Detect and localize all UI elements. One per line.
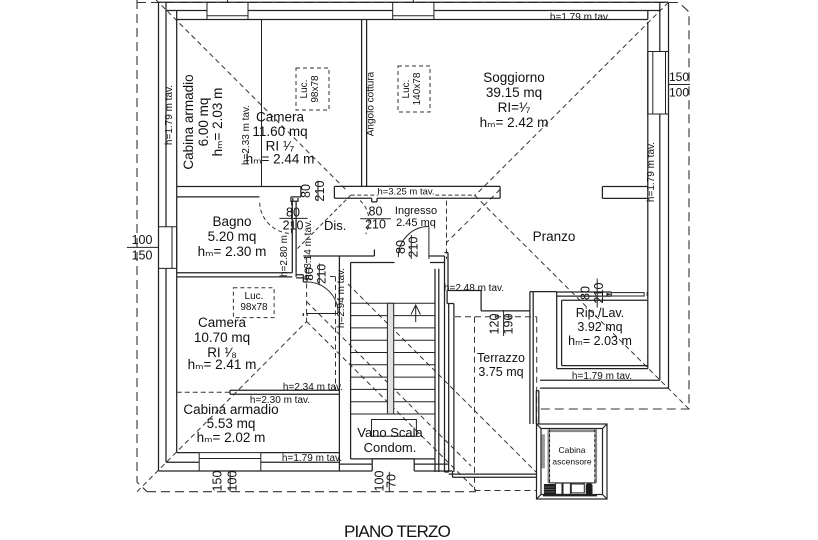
svg-text:Camera: Camera [256,110,305,125]
svg-text:h=1.79 m tav.: h=1.79 m tav. [572,371,632,382]
svg-text:150: 150 [669,70,689,84]
svg-text:100: 100 [669,86,689,100]
svg-text:Pranzo: Pranzo [533,229,576,244]
svg-text:Bagno: Bagno [212,214,251,229]
svg-text:150: 150 [132,249,153,263]
svg-text:Soggiorno: Soggiorno [483,70,545,85]
svg-text:h=1.79 m tav.: h=1.79 m tav. [282,453,342,464]
svg-text:3.92 mq: 3.92 mq [577,320,622,334]
svg-text:h=1.79 m tav.: h=1.79 m tav. [646,142,657,202]
svg-text:PIANO TERZO: PIANO TERZO [344,522,451,540]
svg-text:140x78: 140x78 [412,72,423,105]
svg-text:6.00 mq: 6.00 mq [196,98,211,147]
svg-text:80: 80 [286,205,300,219]
svg-text:h=2.34 m tav.: h=2.34 m tav. [283,382,343,393]
svg-text:210: 210 [313,181,327,202]
svg-text:Cabina armadio: Cabina armadio [181,74,196,169]
svg-text:Cabina armadio: Cabina armadio [183,402,278,417]
svg-text:h=3.14 m tav.: h=3.14 m tav. [303,220,314,280]
svg-text:h=2.94 m tav.: h=2.94 m tav. [336,268,347,328]
svg-text:RI=¹⁄₇: RI=¹⁄₇ [498,100,531,115]
svg-text:Luc.: Luc. [299,80,310,99]
svg-text:210: 210 [407,237,421,258]
svg-text:3.75 mq: 3.75 mq [478,365,523,379]
svg-text:Terrazzo: Terrazzo [477,351,525,365]
svg-text:Vano Scala: Vano Scala [357,425,423,440]
svg-text:hₘ= 2.41 m: hₘ= 2.41 m [188,357,257,372]
svg-text:h=1.79 m tav.: h=1.79 m tav. [164,85,175,145]
svg-text:hₘ= 2.03 m: hₘ= 2.03 m [210,88,225,157]
svg-text:98x78: 98x78 [240,302,268,313]
svg-text:100: 100 [132,233,153,247]
svg-text:hₘ= 2.42 m: hₘ= 2.42 m [480,115,549,130]
svg-text:80: 80 [369,204,383,218]
svg-text:70: 70 [385,474,399,488]
svg-text:Luc.: Luc. [245,291,264,302]
svg-text:Cabina: Cabina [559,445,586,455]
svg-text:100: 100 [226,471,240,492]
svg-text:210: 210 [315,264,329,284]
svg-text:210: 210 [365,218,386,232]
svg-text:h=3.25 m tav.: h=3.25 m tav. [377,187,434,198]
svg-text:Ingresso: Ingresso [395,205,437,217]
svg-text:11.60 mq: 11.60 mq [252,124,307,139]
svg-text:hₘ= 2.44 m: hₘ= 2.44 m [246,152,315,167]
svg-text:Rip./Lav.: Rip./Lav. [576,306,624,320]
svg-text:98x78: 98x78 [310,75,321,103]
svg-text:h=1.79 m tav.: h=1.79 m tav. [550,12,610,23]
svg-text:Luc.: Luc. [401,80,412,99]
svg-text:80: 80 [299,184,313,198]
svg-text:5.53 mq: 5.53 mq [207,416,256,431]
svg-text:210: 210 [283,219,304,233]
svg-text:Dis.: Dis. [324,218,346,233]
svg-text:ascensore: ascensore [552,457,591,467]
svg-text:hₘ= 2.03 m: hₘ= 2.03 m [568,334,632,348]
svg-text:150: 150 [211,471,225,492]
svg-text:hₘ= 2.30 m: hₘ= 2.30 m [198,244,267,259]
svg-text:h=2.80 m: h=2.80 m [279,235,290,277]
svg-text:Angolo cottura: Angolo cottura [366,71,377,136]
svg-text:10.70 mq: 10.70 mq [194,330,250,345]
svg-text:h=2.48 m tav.: h=2.48 m tav. [444,283,504,294]
svg-text:5.20 mq: 5.20 mq [208,229,257,244]
svg-text:39.15 mq: 39.15 mq [486,85,542,100]
svg-text:80: 80 [579,286,593,300]
svg-text:Condom.: Condom. [364,440,417,455]
svg-text:210: 210 [592,283,606,304]
svg-text:2.45 mq: 2.45 mq [396,217,436,229]
svg-text:hₘ= 2.02 m: hₘ= 2.02 m [197,430,266,445]
